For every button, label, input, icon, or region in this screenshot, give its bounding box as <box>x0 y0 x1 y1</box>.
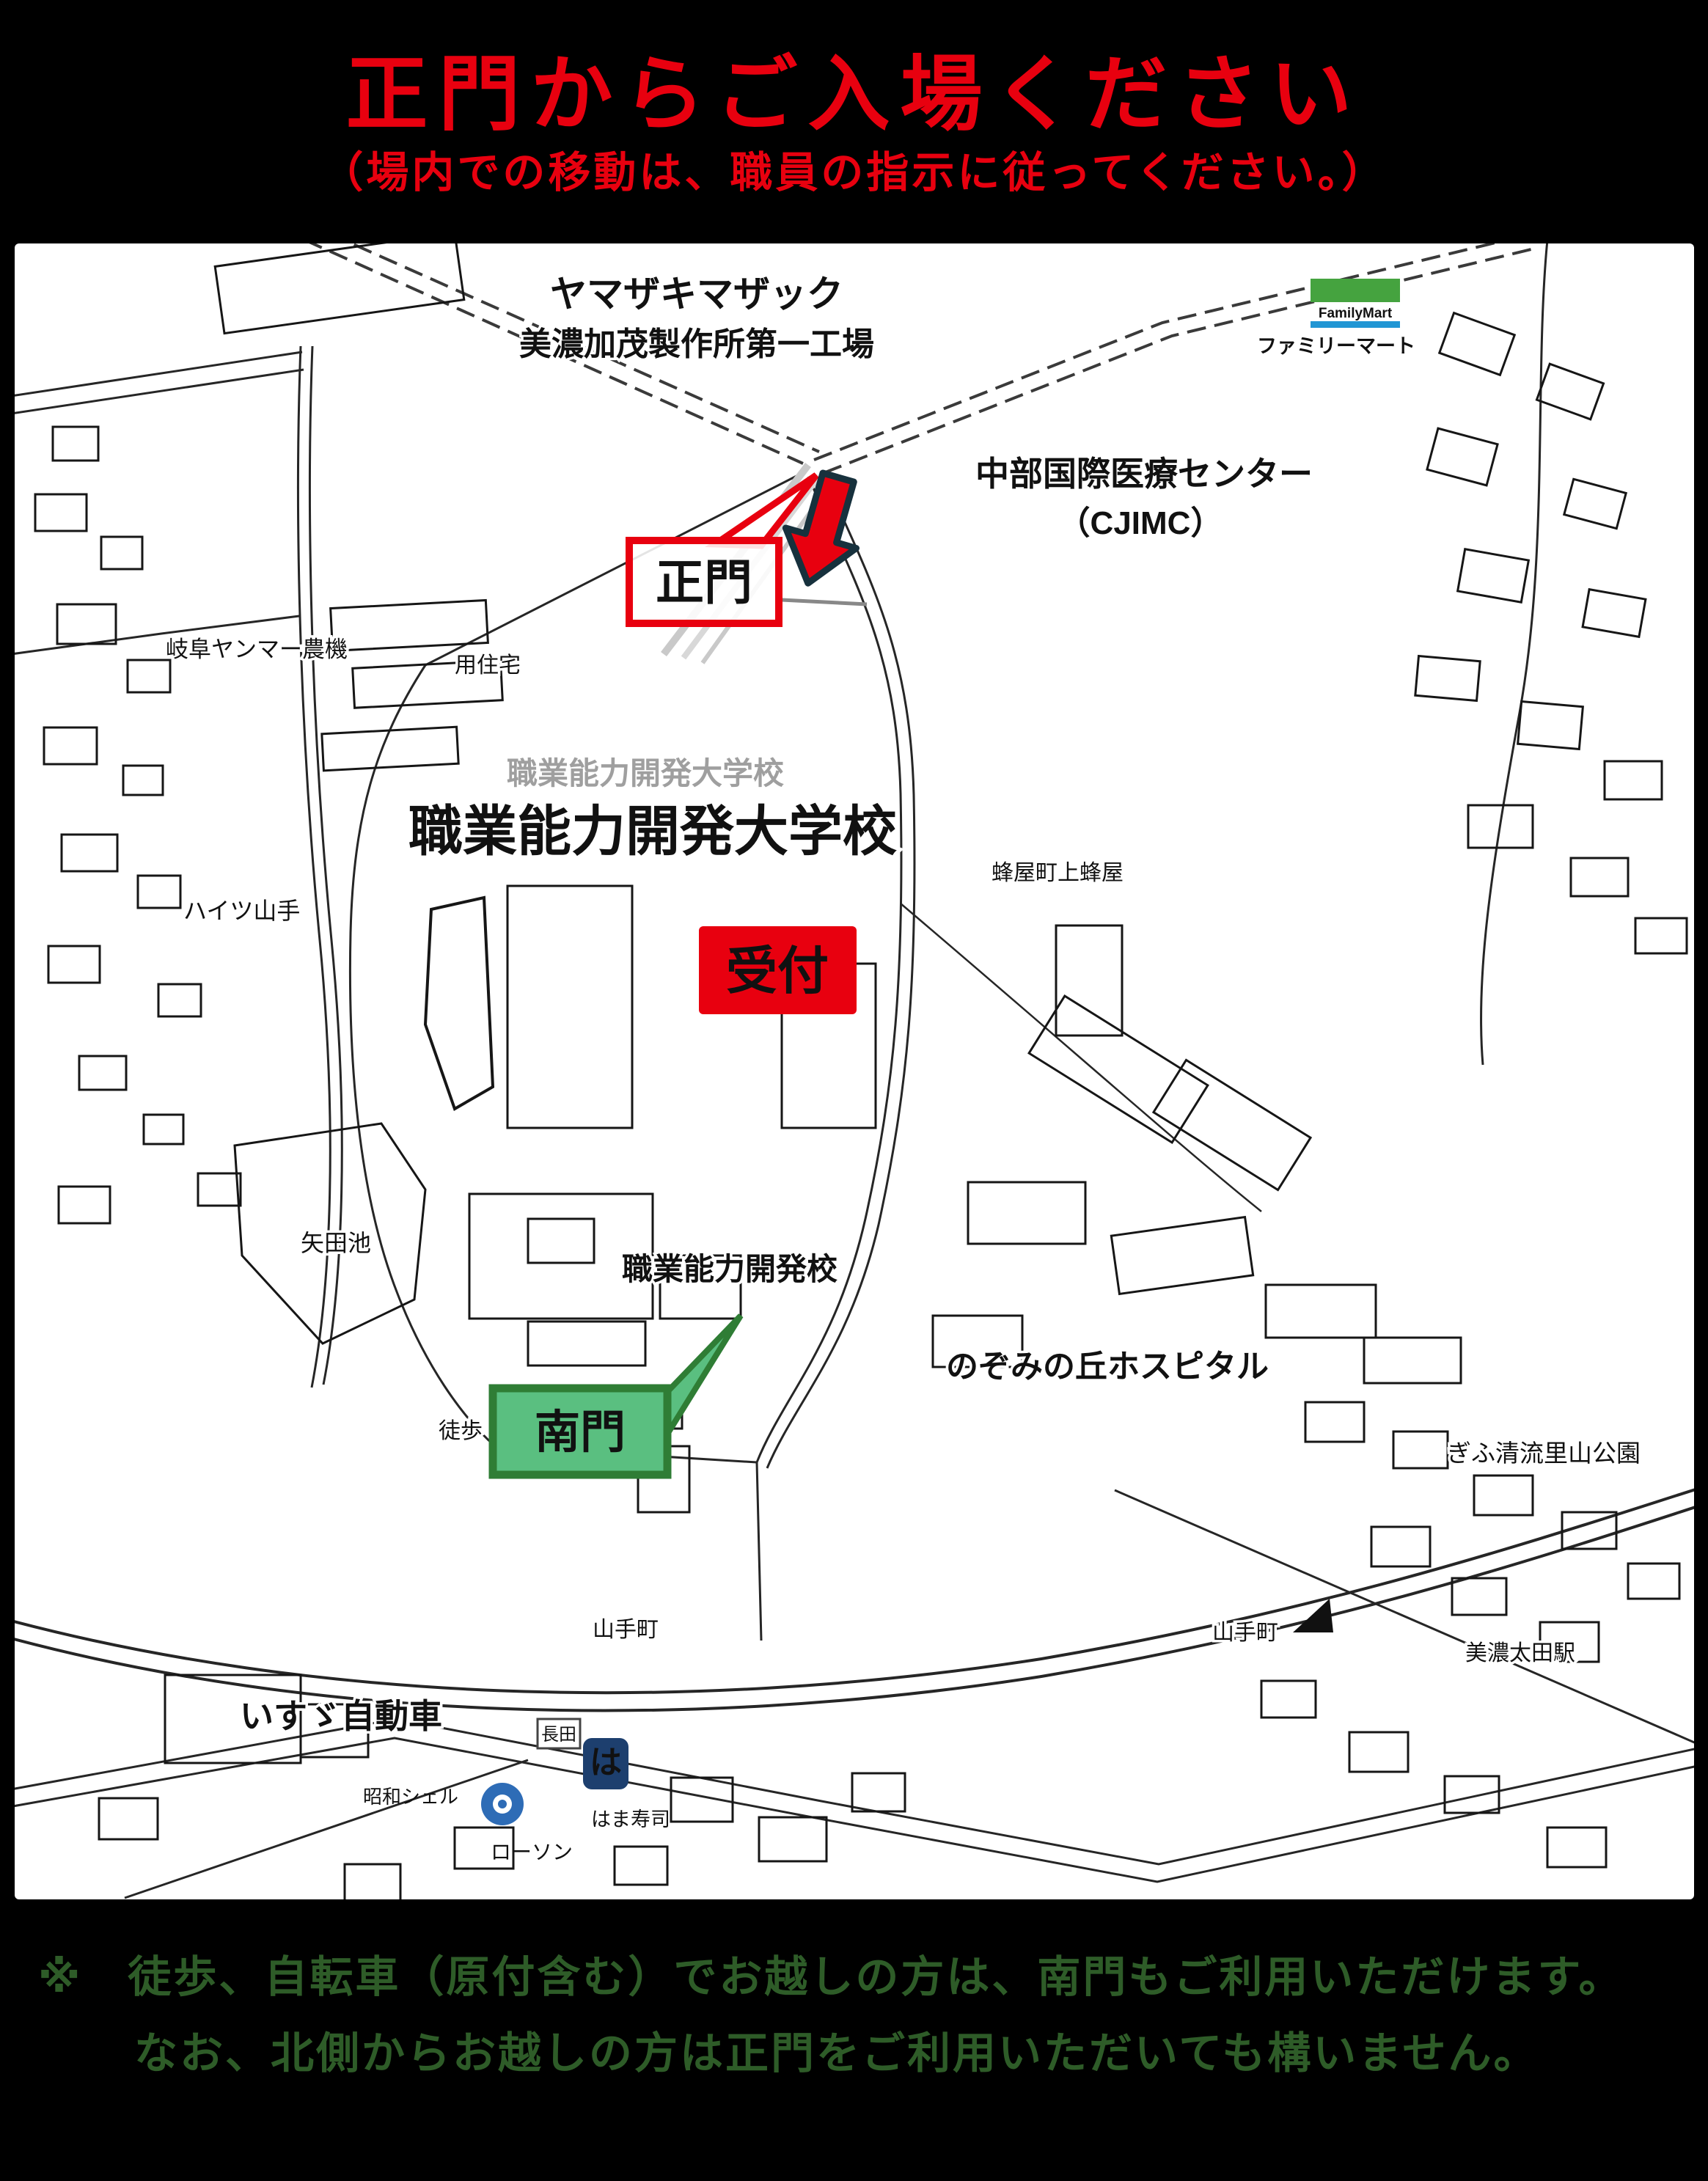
map-line-art-buildings <box>35 243 1687 1899</box>
familymart-logo-icon: FamilyMart <box>1311 279 1400 328</box>
map-label-minokamo-plant: 美濃加茂製作所第一工場 <box>519 326 874 362</box>
map-label-kaihatsu-school: 職業能力開発校 <box>622 1252 837 1286</box>
south-gate-callout: 南門 <box>493 1316 741 1475</box>
mountain-triangle-icon <box>1293 1599 1333 1632</box>
map-label-jutaku: 用住宅 <box>455 653 521 678</box>
map-label-nozomi-hospital: のぞみの丘ホスピタル <box>946 1349 1269 1385</box>
map-label-cjimc-abbr: （CJIMC） <box>1058 505 1223 541</box>
main-gate-callout: 正門 <box>629 465 873 663</box>
reception-label: 受付 <box>726 942 829 1000</box>
page-title: 正門からご入場ください <box>0 28 1708 147</box>
familymart-logo-text: FamilyMart <box>1319 306 1393 321</box>
campus-map: ヤマザキマザック 美濃加茂製作所第一工場 中部国際医療センター （CJIMC） … <box>15 243 1694 1899</box>
south-gate-label: 南門 <box>535 1407 626 1458</box>
map-label-yamate-cho-right: 山手町 <box>1212 1621 1278 1645</box>
map-label-yamazaki-mazak: ヤマザキマザック <box>550 274 843 315</box>
page-subtitle: （場内での移動は、職員の指示に従ってください。） <box>0 138 1708 199</box>
map-label-mino-ota: 美濃太田駅 <box>1465 1641 1575 1665</box>
footer-note-line2: なお、北側からお越しの方は正門をご利用いただいても構いません。 <box>0 2018 1708 2081</box>
map-label-yada-pond: 矢田池 <box>301 1230 371 1256</box>
map-label-cjimc: 中部国際医療センター <box>975 455 1313 493</box>
map-label-heights-yamate: ハイツ山手 <box>183 898 300 924</box>
map-label-hamasushi: はま寿司 <box>591 1808 670 1830</box>
campus-building-outline <box>425 898 493 1109</box>
map-label-hachiya: 蜂屋町上蜂屋 <box>992 861 1124 885</box>
map-label-college-ghost: 職業能力開発大学校 <box>507 756 784 791</box>
map-label-yamate-cho-left: 山手町 <box>593 1618 659 1642</box>
map-canvas: ヤマザキマザック 美濃加茂製作所第一工場 中部国際医療センター （CJIMC） … <box>15 243 1694 1899</box>
south-gate-pointer <box>664 1316 741 1439</box>
map-label-polytechnic-college: 職業能力開発大学校 <box>408 801 897 862</box>
map-label-showa-shell: 昭和シェル <box>363 1786 458 1808</box>
main-gate-label: 正門 <box>656 555 752 609</box>
lawson-logo-icon <box>481 1783 524 1825</box>
footer-note-line1: ※ 徒歩、自転車（原付含む）でお越しの方は、南門もご利用いただけます。 <box>0 1942 1708 2004</box>
reception-callout: 受付 <box>699 926 857 1014</box>
map-label-nagata: 長田 <box>541 1725 576 1745</box>
map-label-familymart: ファミリーマート <box>1257 335 1415 357</box>
map-label-isuzu: いすゞ自動車 <box>240 1697 442 1735</box>
map-label-lawson: ローソン <box>491 1841 573 1863</box>
map-label-yanmar: 岐阜ヤンマー農機 <box>166 637 348 662</box>
hamasushi-logo-icon: は <box>583 1738 628 1789</box>
map-label-satoyama-park: ぎふ清流里山公園 <box>1447 1440 1641 1467</box>
hamasushi-logo-glyph: は <box>590 1745 622 1781</box>
